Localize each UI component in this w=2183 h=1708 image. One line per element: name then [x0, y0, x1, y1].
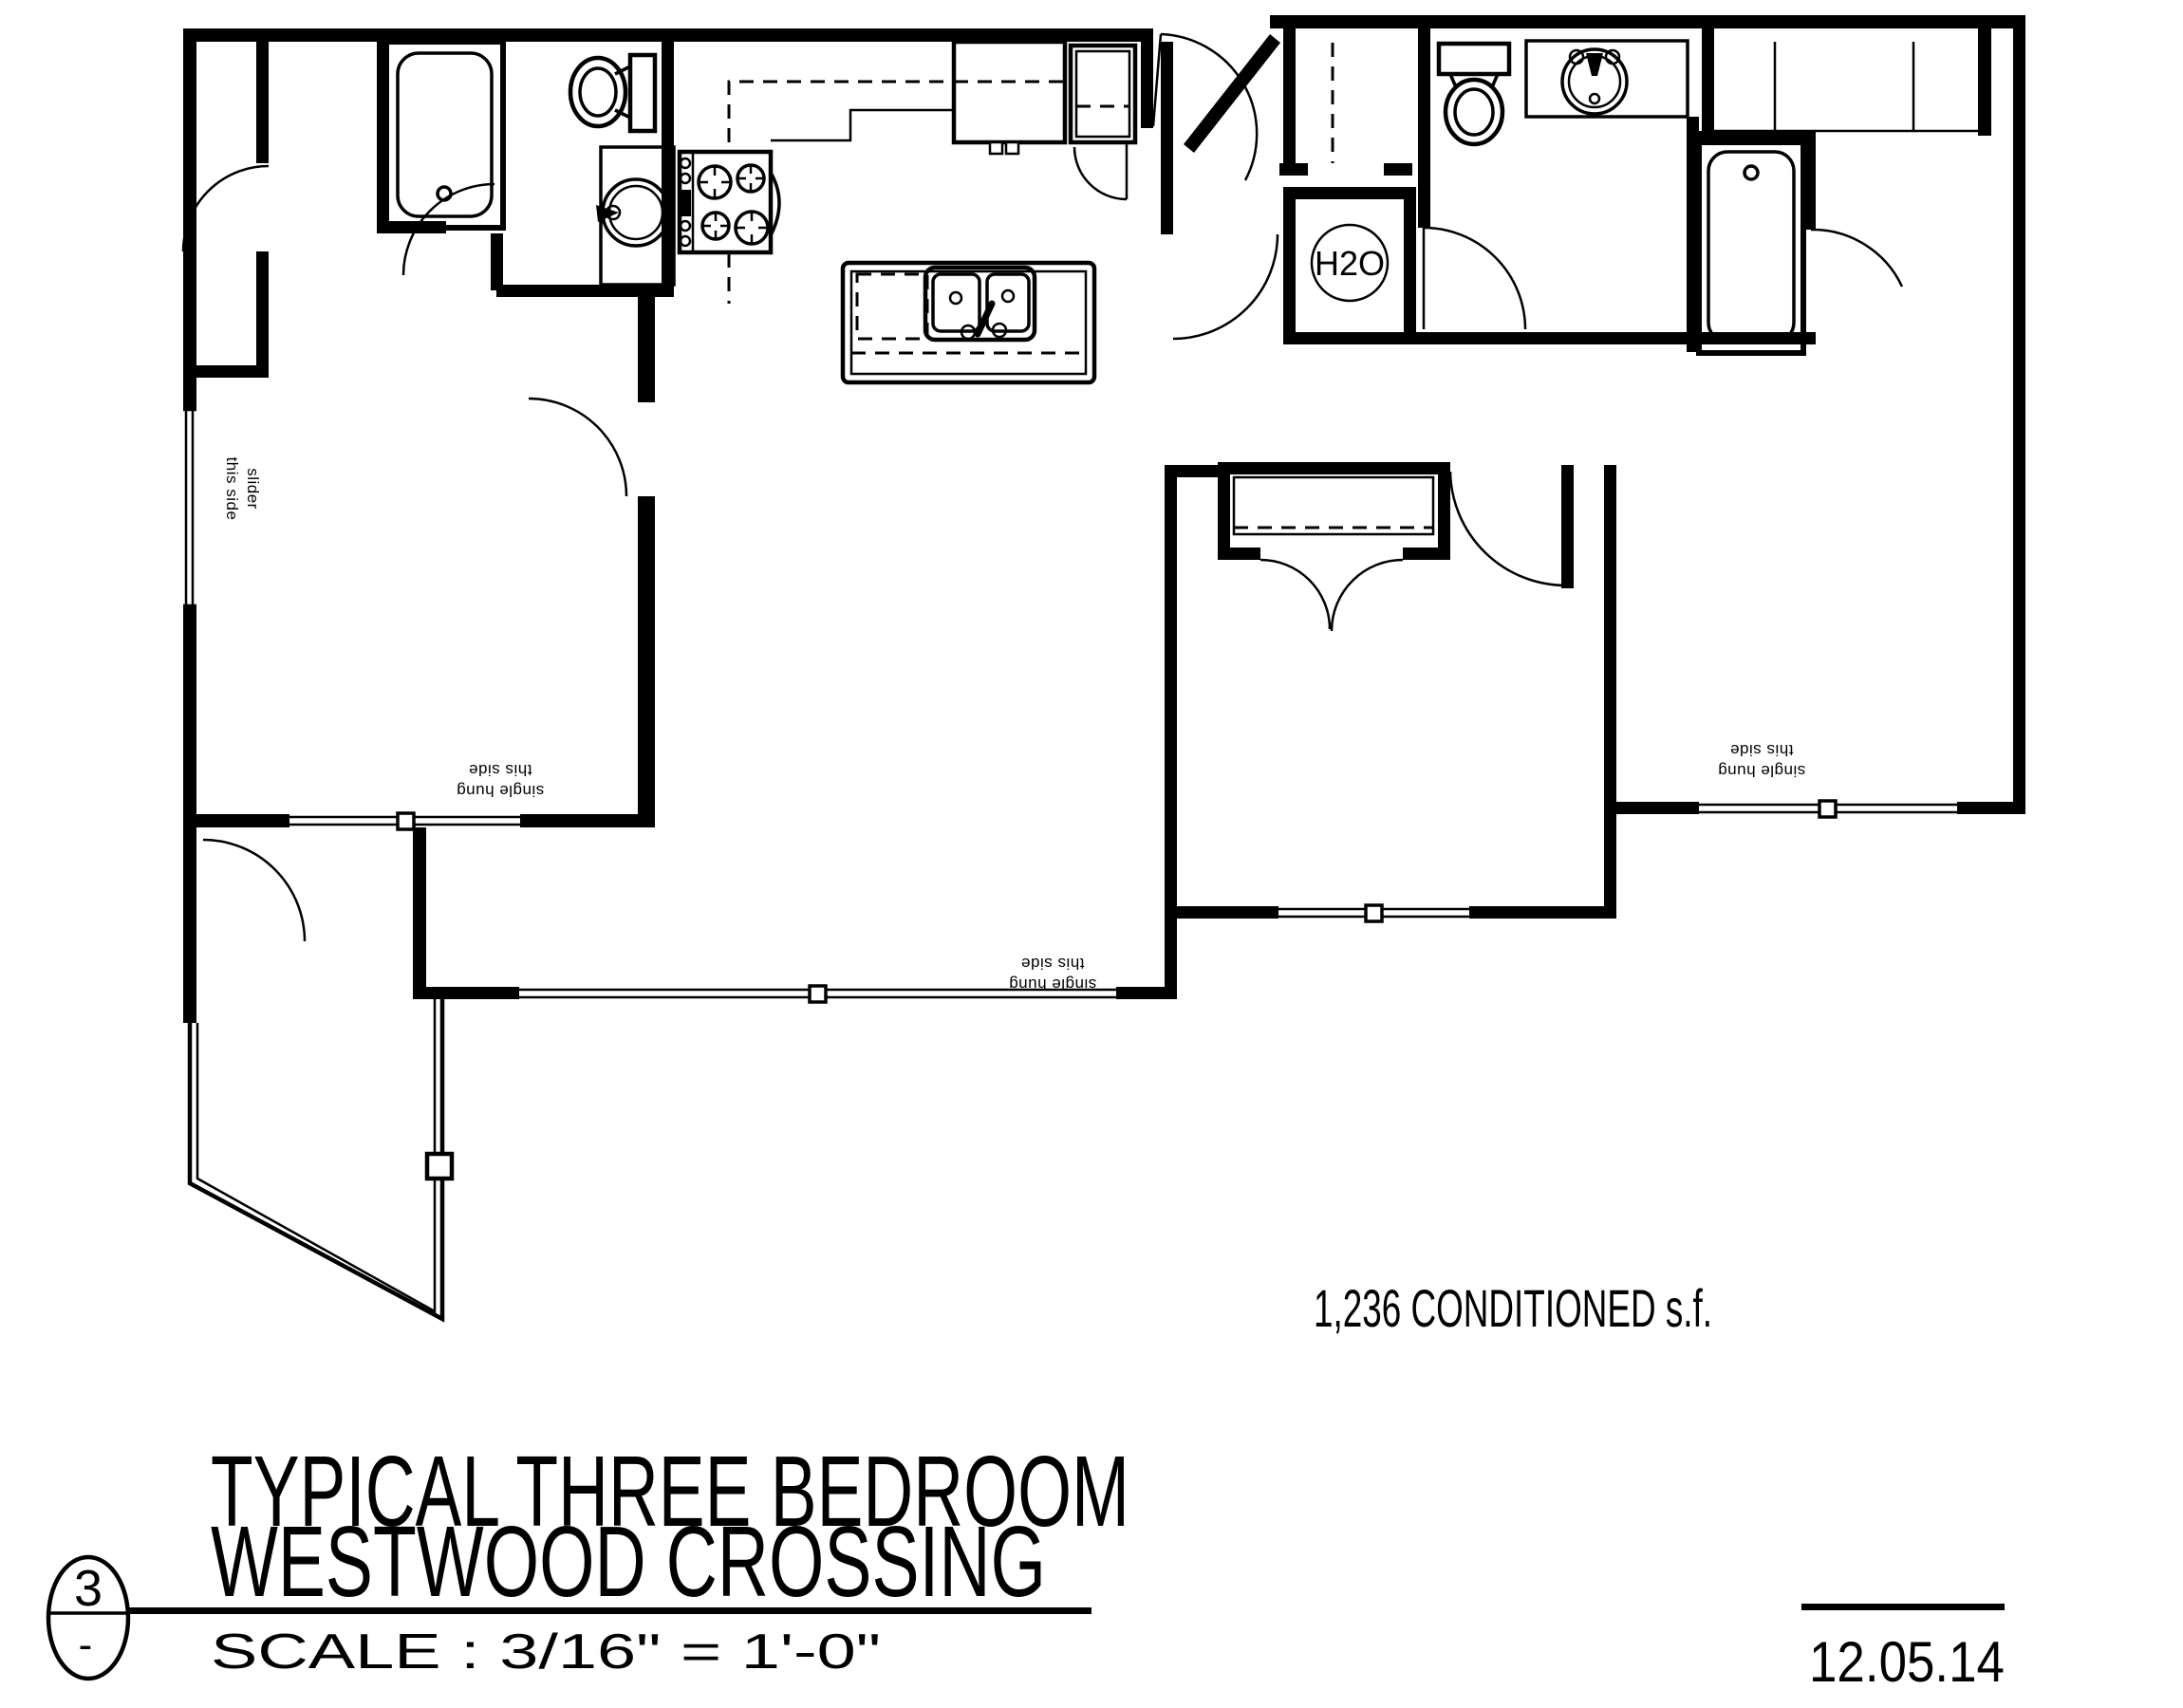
single-hung-label-line1: single hung [1009, 975, 1096, 993]
dishwasher [857, 274, 927, 339]
single-hung-label-line2: this side [469, 761, 532, 779]
refrigerator [954, 42, 1065, 154]
bedroom3-door-arc [1811, 230, 1902, 287]
sink-vanity-2 [1526, 41, 1688, 117]
conditioned-area-note: 1,236 CONDITIONED s.f. [1314, 1278, 1712, 1338]
bathtub-2 [1699, 142, 1803, 353]
pantry-door-arc [1074, 147, 1127, 199]
single-hung-label-line1: single hung [1718, 762, 1805, 780]
water-heater-label: H2O [1315, 244, 1385, 283]
date-rule [1801, 1604, 2005, 1610]
bedroom1-door-arc [529, 399, 626, 496]
label-single-hung-bedroom3: single hung this side [1718, 741, 1805, 780]
pantry-cabinet [1071, 46, 1135, 142]
entry-door-arc [1161, 34, 1257, 180]
kitchen-island [843, 263, 1094, 382]
detail-dash: - [79, 1622, 93, 1668]
bedroom2-closet-shelving [1234, 477, 1433, 534]
detail-number: 3 [74, 1560, 103, 1617]
slider-label-line1: slider [244, 468, 262, 510]
bedroom3-closet [1714, 42, 1978, 131]
closet-door-left-arc [1260, 560, 1330, 629]
window-single-hung-bedroom1 [289, 813, 520, 829]
single-hung-label-line1: single hung [457, 782, 544, 800]
toilet-1 [570, 55, 655, 131]
single-hung-label-line2: this side [1021, 955, 1085, 973]
toilet-2 [1439, 44, 1509, 144]
drawing-sheet: H2O slider this side single hung this [0, 0, 2183, 1708]
floor-plan-canvas: H2O slider this side single hung this [0, 0, 2183, 1708]
scale-note: SCALE : 3/16" = 1'-0" [211, 1624, 881, 1680]
sheet-date: 12.05.14 [1809, 1630, 2005, 1694]
bedroom2-door-arc [1450, 472, 1566, 585]
single-hung-label-line2: this side [1730, 741, 1794, 759]
interior-walls [196, 28, 1991, 999]
bath2-door-arc [1424, 228, 1525, 329]
window-single-hung-bedroom3 [1699, 801, 1957, 817]
detail-marker: 3 - [48, 1557, 128, 1679]
title-block: TYPICAL THREE BEDROOM WESTWOOD CROSSING … [48, 1436, 2005, 1694]
sheet-title-line2: WESTWOOD CROSSING [211, 1506, 1046, 1618]
closet-door-right-arc [1332, 560, 1403, 631]
hall-door-arc [1173, 234, 1278, 339]
label-slider: slider this side [223, 457, 262, 521]
bathtub-1 [386, 42, 503, 228]
stove [680, 152, 779, 252]
window-slider-left-wall [183, 410, 196, 605]
label-single-hung-bedroom1: single hung this side [457, 761, 544, 800]
title-rule [121, 1607, 1091, 1614]
water-heater: H2O [1312, 225, 1388, 301]
deck-door-arc [203, 840, 305, 941]
entry-door-leaf [1153, 34, 1161, 126]
label-single-hung-living: single hung this side [1009, 955, 1096, 993]
window-single-hung-bedroom2 [1278, 905, 1469, 921]
slider-label-line2: this side [223, 457, 241, 521]
double-sink [925, 268, 1035, 340]
deck-outline [190, 999, 452, 1319]
